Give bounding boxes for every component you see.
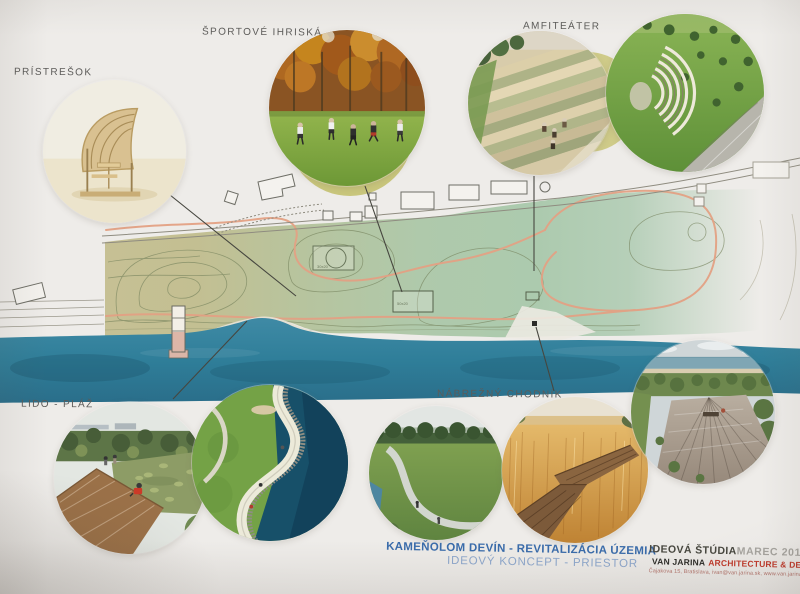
photo-amphitheatre-steps bbox=[468, 31, 612, 175]
plan-dim-label-pitch: 50x20 bbox=[397, 301, 409, 306]
study-date: MAREC 2018 bbox=[737, 545, 800, 559]
plan-pier bbox=[169, 306, 188, 358]
callout-label-lido-plaz: LIDO - PLÁŽ bbox=[21, 399, 94, 411]
photo-amphitheatre-lawn bbox=[606, 14, 764, 172]
photo-lido-promenade bbox=[192, 385, 348, 541]
plan-marker-square bbox=[532, 321, 537, 326]
callout-label-pristresok: PRÍSTREŠOK bbox=[14, 67, 93, 79]
callout-label-amfiteater: AMFITEÁTER bbox=[523, 21, 600, 33]
photo-riverside-path bbox=[369, 406, 503, 540]
photo-lido-boardwalk bbox=[54, 402, 206, 554]
plan-left-lines bbox=[0, 300, 104, 327]
callout-label-sportove-ihriska: ŠPORTOVÉ IHRISKÁ bbox=[202, 26, 322, 38]
firm-name: VAN JARINA bbox=[652, 556, 706, 567]
title-block: KAMEŇOLOM DEVÍN - REVITALIZÁCIA ÚZEMIA I… bbox=[386, 541, 640, 570]
callout-label-nabrezny-chodnik: NÁBREŽNÝ CHODNÍK bbox=[437, 388, 563, 400]
plan-dim-label-court: 30x20 bbox=[317, 264, 329, 269]
photo-reed-boardwalk bbox=[502, 397, 648, 543]
photo-wooden-deck bbox=[631, 340, 775, 484]
photo-shelter bbox=[43, 80, 186, 223]
photo-sports-fields bbox=[269, 30, 425, 186]
credits-block: IDEOVÁ ŠTÚDIA MAREC 2018 VAN JARINA ARCH… bbox=[649, 543, 798, 577]
study-type: IDEOVÁ ŠTÚDIA bbox=[649, 543, 737, 557]
concept-board: 30x20 50x20 bbox=[0, 0, 800, 594]
